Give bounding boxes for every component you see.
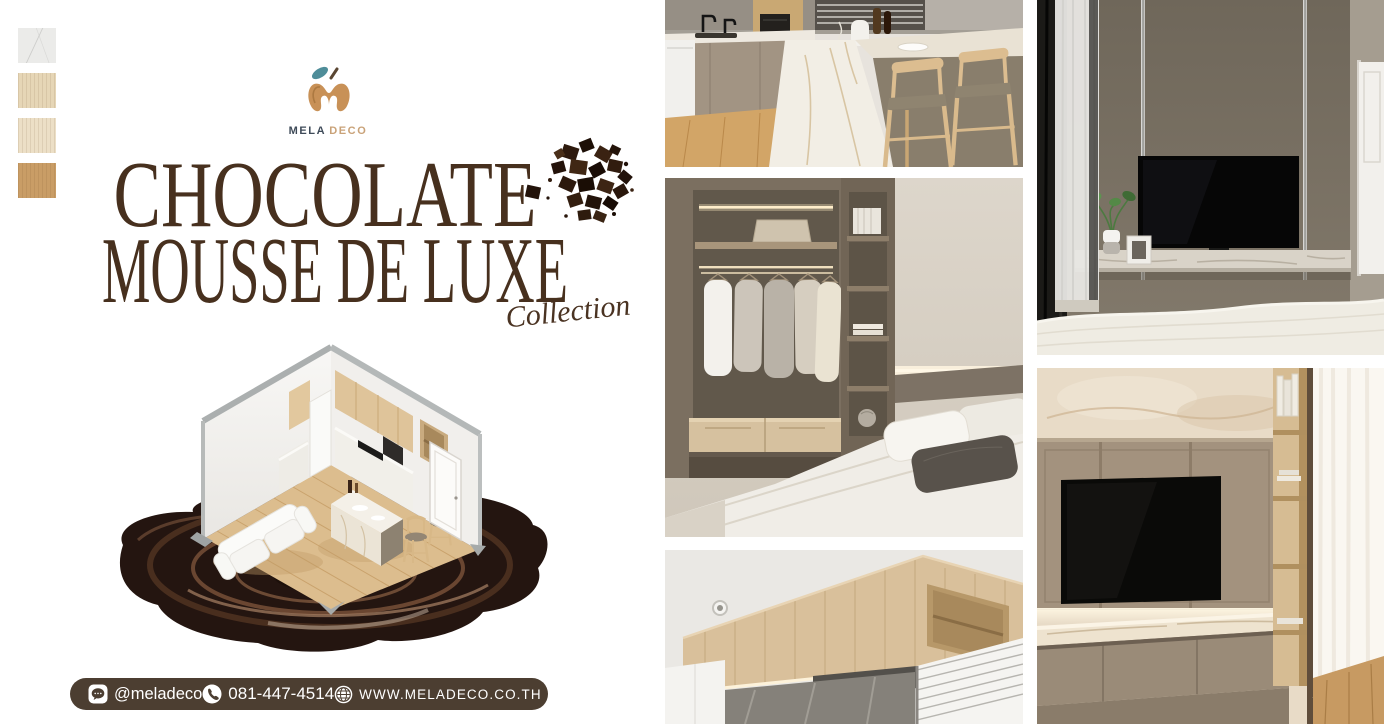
room-door [430, 442, 461, 540]
marble-floating-shelf [1075, 250, 1351, 280]
phone-text: 081-447-4514 [228, 684, 334, 704]
poster-canvas: MELADECO CHOCOLATE MOUSSE DE LUXE Collec… [0, 0, 1384, 724]
globe-icon [334, 685, 353, 704]
contact-phone: 081-447-4514 [202, 684, 334, 704]
photo-living-room-tv-wall [1037, 368, 1384, 724]
hanging-clothes [704, 274, 842, 383]
living-room-tv-wall-image [1037, 368, 1384, 724]
isometric-room-illustration [98, 340, 566, 666]
photo-bedroom-closet [665, 178, 1023, 537]
wood-shelf-column [1273, 368, 1307, 686]
contact-bar: @meladeco 081-447-4514 WWW.MELAD [70, 678, 548, 710]
tv-icon [1138, 156, 1299, 251]
chocolate-chunks-icon [522, 128, 644, 240]
photo-kitchen-cabinets [665, 550, 1023, 724]
contact-line: @meladeco [88, 684, 202, 704]
apple-monogram-icon [298, 64, 358, 118]
contact-website: WWW.MELADECO.CO.TH [334, 685, 542, 704]
brand-name: MELADECO [281, 125, 375, 137]
photo-kitchen-island-bar [665, 0, 1023, 167]
swatch-light-beige-wood [18, 73, 56, 108]
kitchen-cabinets-image [665, 550, 1023, 724]
kitchen-island-bar-image [665, 0, 1023, 167]
line-id-text: @meladeco [114, 685, 202, 704]
left-panel: MELADECO CHOCOLATE MOUSSE DE LUXE Collec… [0, 0, 665, 724]
website-text: WWW.MELADECO.CO.TH [359, 687, 542, 702]
phone-icon [202, 684, 222, 704]
line-messenger-icon [88, 684, 108, 704]
curtains [1037, 0, 1099, 355]
bedroom-closet-image [665, 178, 1023, 537]
tv-icon [1061, 476, 1221, 604]
photo-bedroom-tv-wall [1037, 0, 1384, 355]
swatch-natural-oak-wood [18, 163, 56, 198]
brand-logo: MELADECO [281, 64, 375, 137]
swatch-cream-wood [18, 118, 56, 153]
brand-name-secondary: DECO [329, 125, 367, 137]
marble-bench [1037, 612, 1289, 724]
poster-title: CHOCOLATE MOUSSE DE LUXE [62, 150, 602, 320]
bedroom-tv-wall-image [1037, 0, 1384, 355]
swatch-white-marble [18, 28, 56, 63]
brand-name-primary: MELA [289, 125, 327, 137]
